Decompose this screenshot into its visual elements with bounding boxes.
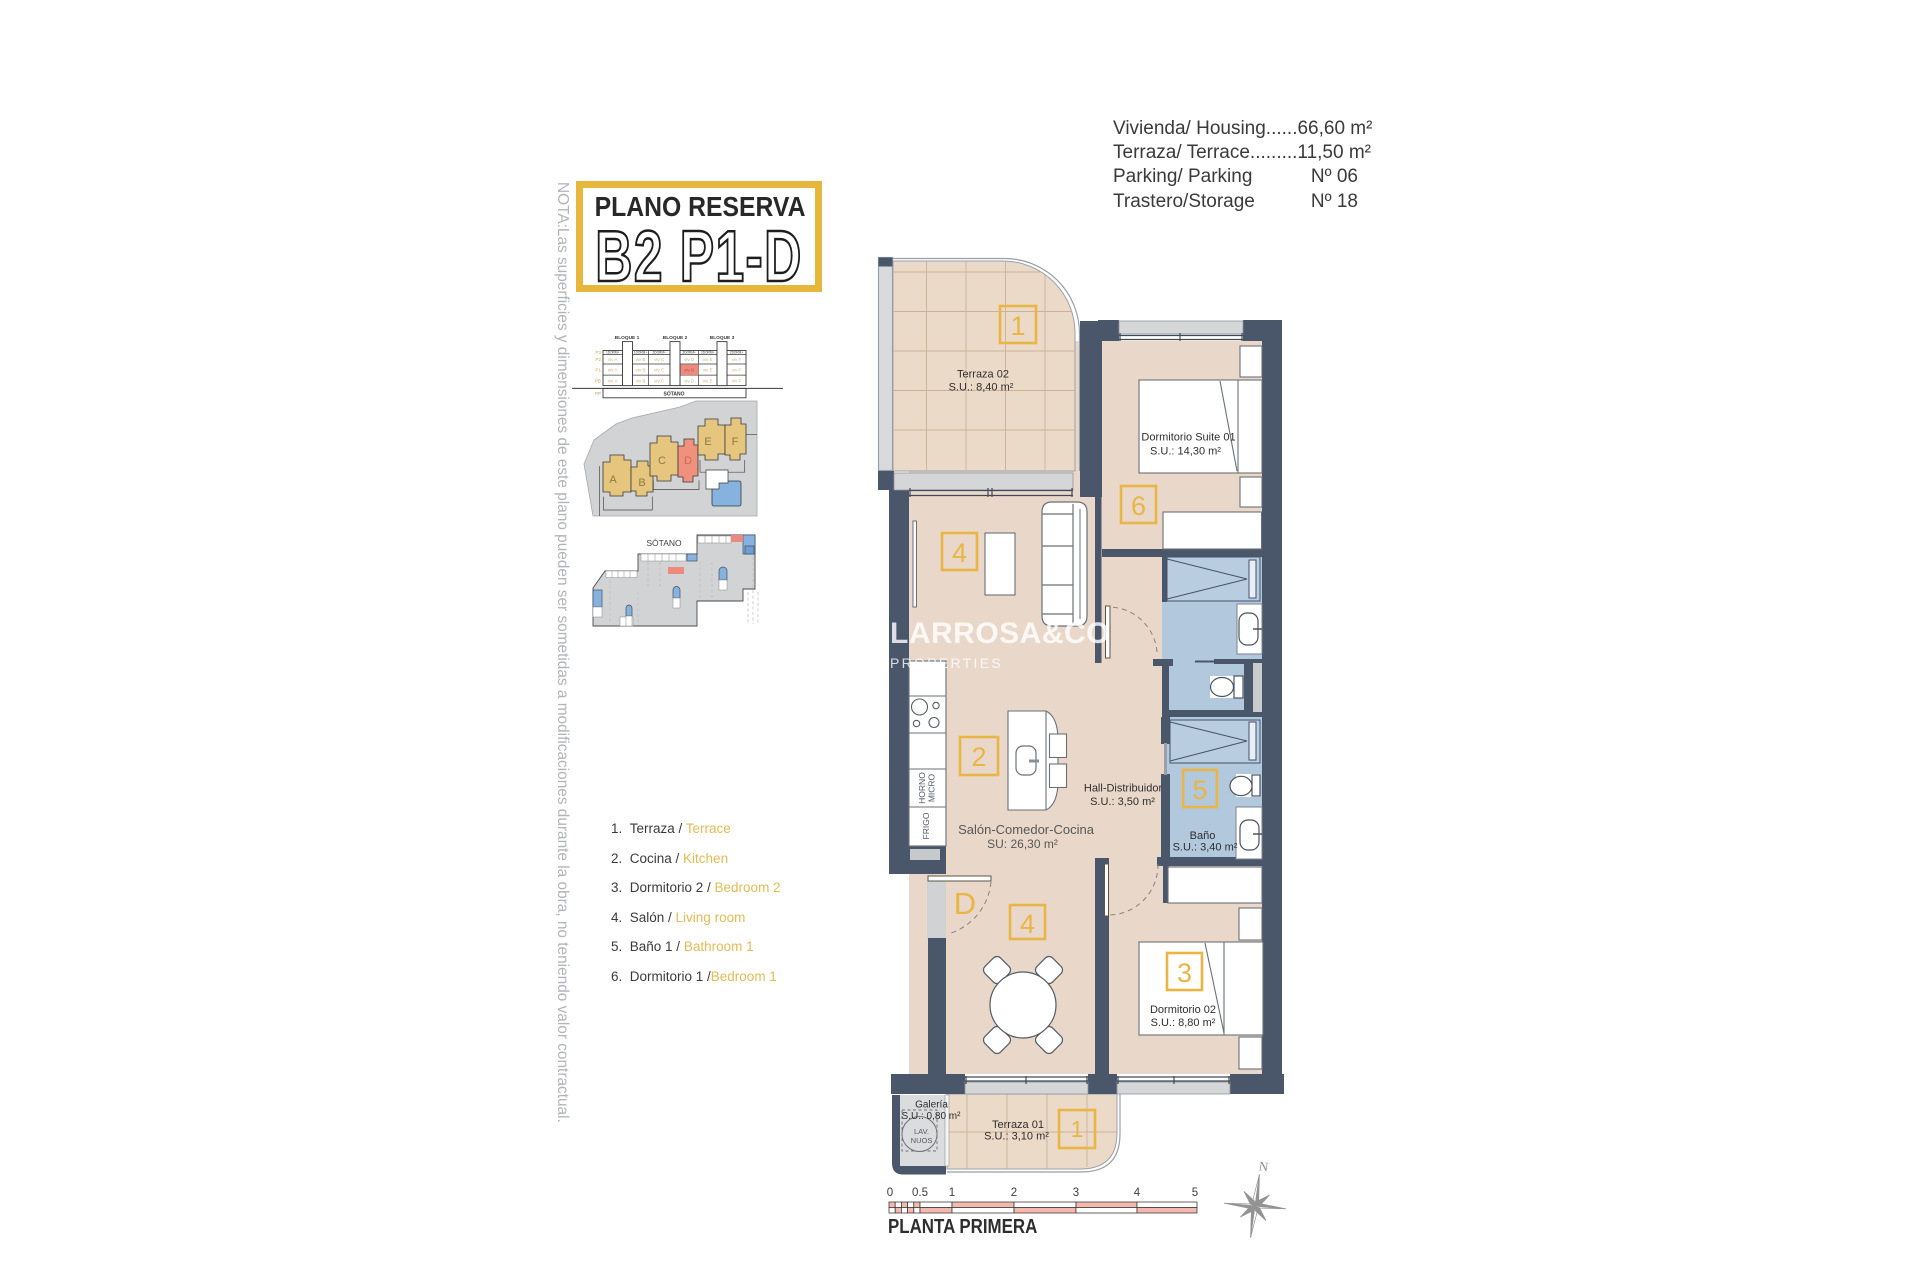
svg-text:viv F: viv F [732,378,742,383]
svg-text:5: 5 [1192,775,1207,805]
svg-text:B: B [638,477,645,489]
svg-text:viv E: viv E [703,367,713,372]
svg-text:SÓTANO: SÓTANO [646,538,682,548]
svg-text:BLOQUE 3: BLOQUE 3 [710,335,735,341]
svg-text:S.U.: 3,40 m²: S.U.: 3,40 m² [1173,842,1238,854]
svg-text:Terraza 01: Terraza 01 [992,1119,1044,1131]
svg-text:viv A: viv A [608,378,619,383]
svg-text:SU: 26,30 m²: SU: 26,30 m² [987,837,1058,851]
svg-text:SÓTANO: SÓTANO [663,390,684,398]
svg-text:3: 3 [1073,1187,1079,1199]
svg-text:viv A: viv A [608,367,619,372]
svg-text:NUOS: NUOS [911,1136,933,1145]
svg-text:3: 3 [1177,958,1192,988]
svg-text:PP: PP [595,391,601,396]
svg-text:1DORM+: 1DORM+ [606,350,620,354]
svg-text:S.U.: 0,80 m²: S.U.: 0,80 m² [902,1111,962,1122]
svg-text:1: 1 [949,1187,955,1199]
svg-text:MICRO: MICRO [927,773,937,802]
svg-text:viv C: viv C [654,367,665,372]
svg-text:S.U.: 3,50 m²: S.U.: 3,50 m² [1090,796,1155,808]
svg-text:BLOQUE 1: BLOQUE 1 [615,335,640,341]
svg-text:0: 0 [887,1187,893,1199]
svg-text:4: 4 [1134,1187,1141,1199]
svg-text:1DORM+: 1DORM+ [634,350,648,354]
svg-text:E: E [704,436,711,448]
svg-text:S.U.: 3,10 m²: S.U.: 3,10 m² [984,1131,1049,1143]
svg-text:S.U.: 8,40 m²: S.U.: 8,40 m² [949,382,1014,394]
svg-text:viv C: viv C [654,357,665,362]
svg-text:2DORM+: 2DORM+ [653,350,667,354]
svg-text:0.5: 0.5 [912,1187,928,1199]
svg-text:viv D: viv D [684,367,695,372]
svg-text:P2: P2 [595,357,601,362]
svg-text:C: C [658,455,666,467]
svg-text:FRIGO: FRIGO [921,812,931,839]
svg-text:LAV.: LAV. [914,1127,929,1136]
svg-text:viv D: viv D [684,357,695,362]
svg-text:2DORM+: 2DORM+ [683,350,697,354]
svg-text:viv B: viv B [636,357,646,362]
svg-text:F: F [732,436,739,448]
svg-text:6: 6 [1131,491,1146,521]
svg-text:Salón-Comedor-Cocina: Salón-Comedor-Cocina [958,822,1095,837]
svg-text:2DORM+: 2DORM+ [730,350,744,354]
svg-text:2: 2 [1011,1187,1017,1199]
svg-text:P1: P1 [595,368,601,373]
svg-text:P3: P3 [595,350,601,355]
svg-text:Galería: Galería [915,1100,948,1111]
svg-text:4: 4 [952,538,967,568]
svg-text:2DORM+: 2DORM+ [701,350,715,354]
svg-text:2: 2 [971,742,986,772]
svg-text:A: A [609,474,617,486]
svg-text:S.U.: 8,80 m²: S.U.: 8,80 m² [1151,1017,1216,1029]
svg-text:Hall-Distribuidor: Hall-Distribuidor [1084,782,1163,794]
svg-text:5: 5 [1192,1187,1198,1199]
svg-text:N: N [1258,1158,1270,1174]
svg-text:viv C: viv C [654,378,665,383]
svg-text:viv E: viv E [703,378,713,383]
svg-text:PB: PB [595,379,601,384]
svg-text:Dormitorio Suite 01: Dormitorio Suite 01 [1141,432,1235,444]
svg-text:viv E: viv E [703,357,713,362]
svg-text:Baño: Baño [1190,830,1216,842]
svg-text:D: D [684,455,692,467]
svg-text:viv B: viv B [636,378,646,383]
svg-text:4: 4 [1020,909,1035,939]
svg-text:S.U.: 14,30 m²: S.U.: 14,30 m² [1150,445,1221,457]
svg-text:viv D: viv D [684,378,695,383]
svg-text:viv F: viv F [732,367,742,372]
svg-text:1: 1 [1071,1116,1084,1142]
svg-text:HORNO: HORNO [917,772,927,804]
svg-text:Dormitorio 02: Dormitorio 02 [1150,1004,1216,1016]
svg-text:viv F: viv F [732,357,742,362]
svg-text:viv A: viv A [608,357,619,362]
svg-text:1: 1 [1010,311,1025,341]
svg-text:viv B: viv B [636,367,646,372]
svg-text:D: D [954,886,976,921]
svg-text:Terraza 02: Terraza 02 [957,369,1009,381]
svg-text:BLOQUE 2: BLOQUE 2 [663,335,688,341]
